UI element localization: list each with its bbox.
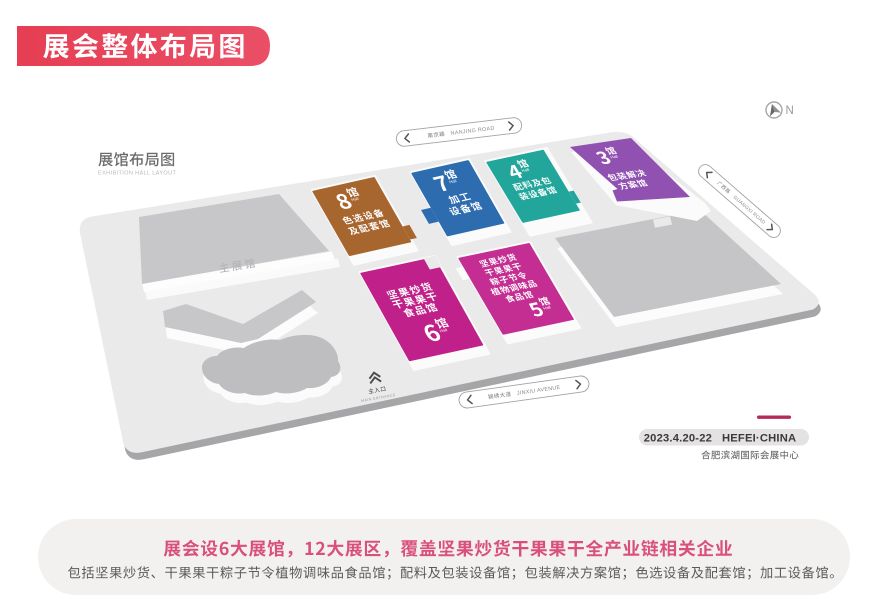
svg-text:N: N (786, 105, 794, 117)
svg-text:GUANGXI ROAD: GUANGXI ROAD (732, 195, 767, 227)
svg-text:2023.4.20-22 HEFEI·CHINA: 2023.4.20-22 HEFEI·CHINA (644, 433, 797, 445)
svg-text:EXHIBITION HALL LAYOUT: EXHIBITION HALL LAYOUT (98, 171, 176, 177)
